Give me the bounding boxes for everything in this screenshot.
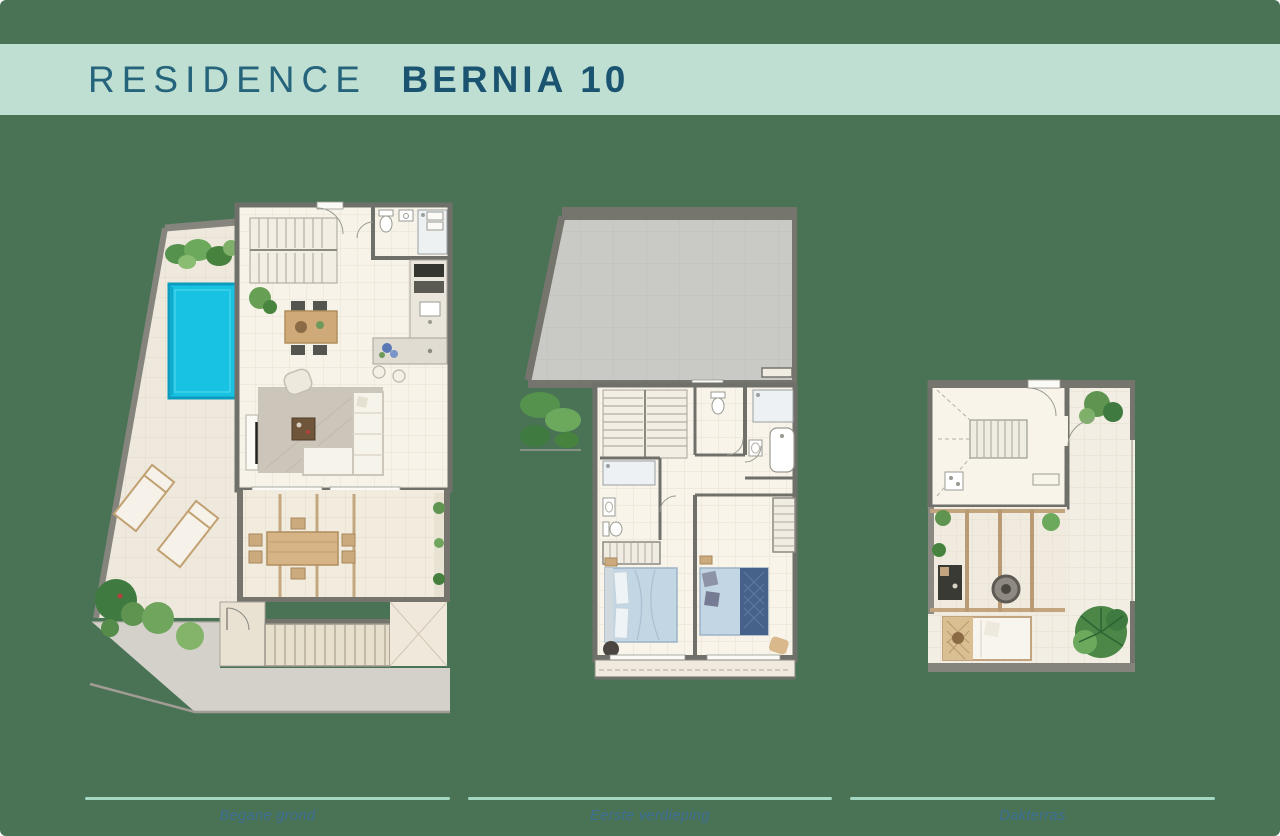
caption-label-roof: Dakterras: [850, 808, 1215, 824]
roof-hatch: [762, 368, 792, 377]
first-floor-interior: [595, 385, 795, 678]
building-interior: [237, 202, 450, 493]
sink: [945, 472, 963, 490]
blanket: [740, 568, 768, 635]
caption-ground: Begane grond: [85, 797, 450, 824]
lounge-area: [928, 614, 1067, 663]
stool: [373, 366, 385, 378]
first-floor-drawing: [515, 200, 800, 692]
balcony: [595, 655, 795, 678]
staircase: [603, 390, 687, 458]
ground-floor-drawing: [86, 198, 454, 718]
divider-line: [468, 797, 832, 800]
caption-roof: Dakterras: [850, 797, 1215, 824]
page: RESIDENCE BERNIA 10: [0, 0, 1280, 836]
page-title: RESIDENCE BERNIA 10: [88, 61, 629, 98]
divider-line: [85, 797, 450, 800]
kitchen: [410, 260, 447, 338]
title-bold: BERNIA 10: [401, 59, 629, 100]
title-light: RESIDENCE: [88, 59, 367, 100]
side-garden: [520, 392, 581, 450]
stair-house: [930, 380, 1094, 507]
open-terrace: [1065, 383, 1135, 666]
stool: [393, 370, 405, 382]
caption-first: Eerste verdieping: [468, 797, 832, 824]
pergola: [928, 507, 1067, 614]
covered-terrace: [237, 490, 450, 602]
divider-line: [850, 797, 1215, 800]
roof-terrace-drawing: [925, 376, 1138, 676]
bedroom-1: [603, 558, 677, 657]
caption-label-first: Eerste verdieping: [468, 808, 832, 824]
floor-plan-first: [515, 200, 800, 692]
swimming-pool: [169, 284, 236, 398]
pool-terrace: [96, 222, 237, 618]
header-band: RESIDENCE BERNIA 10: [0, 44, 1280, 115]
caption-label-ground: Begane grond: [85, 808, 450, 824]
coffee-table: [292, 418, 315, 440]
floor-plan-roof: [925, 376, 1138, 676]
floor-plan-ground: [86, 198, 454, 718]
staircase: [250, 218, 337, 283]
entrance-stairs: [220, 602, 447, 666]
flat-roof: [528, 207, 797, 388]
round-rug: [603, 641, 619, 657]
